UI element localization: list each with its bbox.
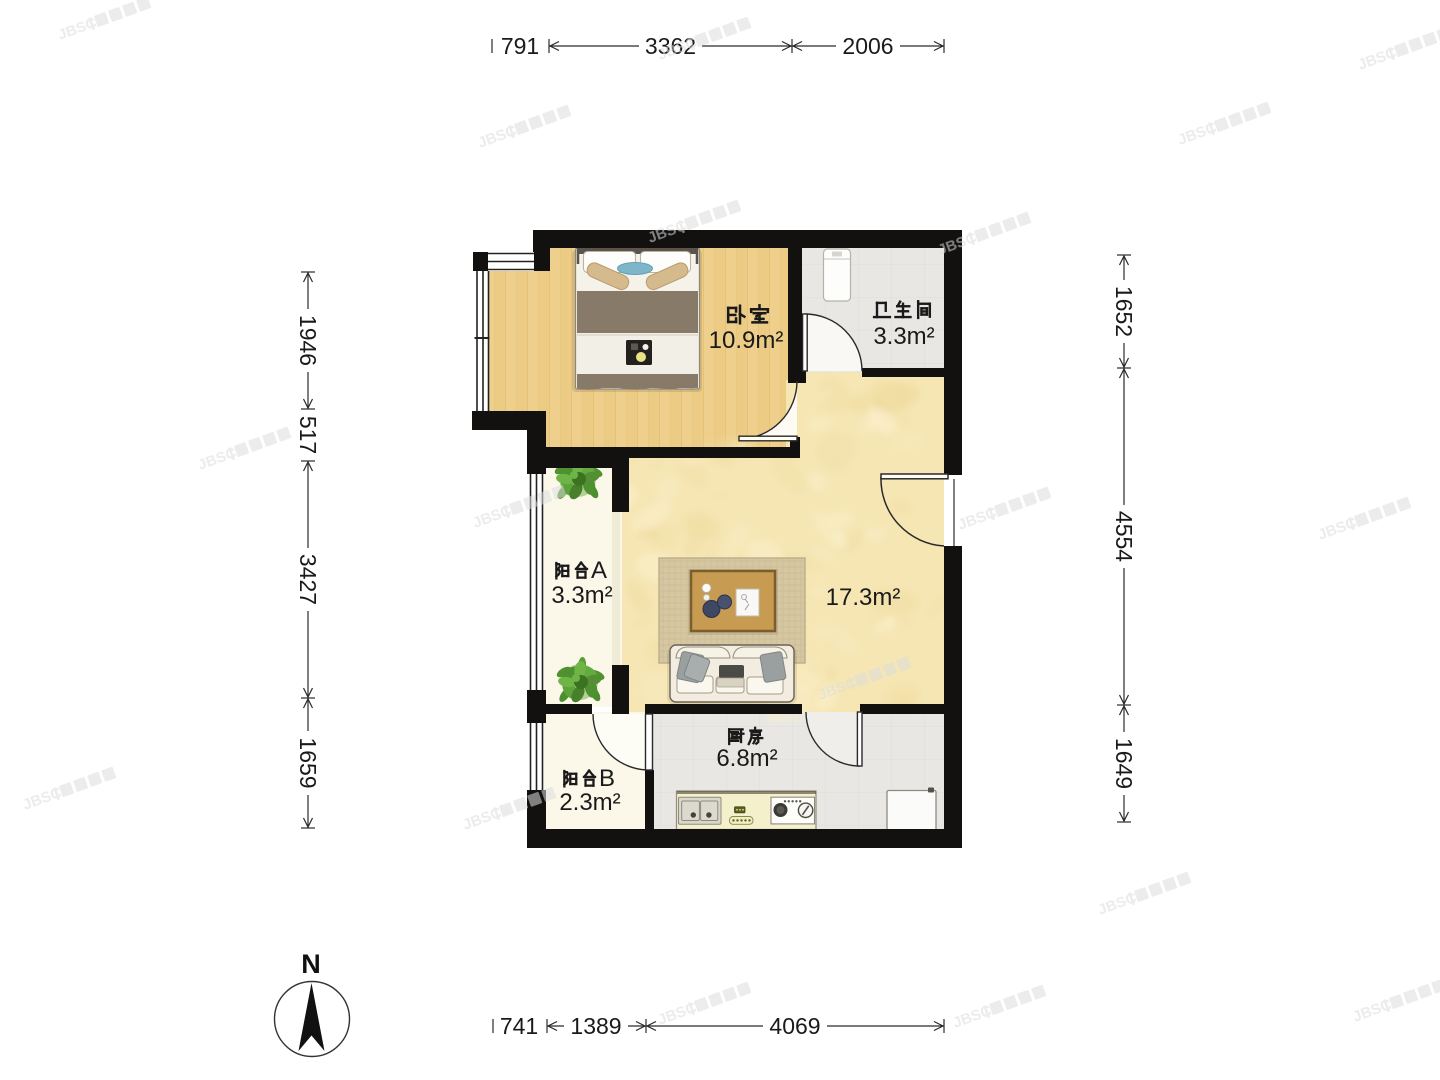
svg-text:517: 517 xyxy=(295,416,321,454)
svg-text:17.3m²: 17.3m² xyxy=(826,584,901,611)
svg-text:N: N xyxy=(301,949,321,979)
svg-text:4069: 4069 xyxy=(769,1013,820,1039)
svg-text:10.9m²: 10.9m² xyxy=(709,327,784,354)
svg-text:B: B xyxy=(599,765,615,792)
svg-text:1649: 1649 xyxy=(1111,738,1137,789)
svg-text:2.3m²: 2.3m² xyxy=(559,789,620,816)
svg-text:2006: 2006 xyxy=(842,33,893,59)
svg-text:791: 791 xyxy=(501,33,539,59)
svg-text:3427: 3427 xyxy=(295,554,321,605)
svg-text:3.3m²: 3.3m² xyxy=(873,323,934,350)
svg-text:1652: 1652 xyxy=(1111,286,1137,337)
svg-text:4554: 4554 xyxy=(1111,511,1137,562)
svg-text:1659: 1659 xyxy=(295,737,321,788)
svg-text:1389: 1389 xyxy=(570,1013,621,1039)
svg-text:1946: 1946 xyxy=(295,315,321,366)
svg-text:3.3m²: 3.3m² xyxy=(551,582,612,609)
svg-text:A: A xyxy=(591,557,607,584)
svg-text:6.8m²: 6.8m² xyxy=(716,745,777,772)
svg-text:741: 741 xyxy=(500,1013,538,1039)
